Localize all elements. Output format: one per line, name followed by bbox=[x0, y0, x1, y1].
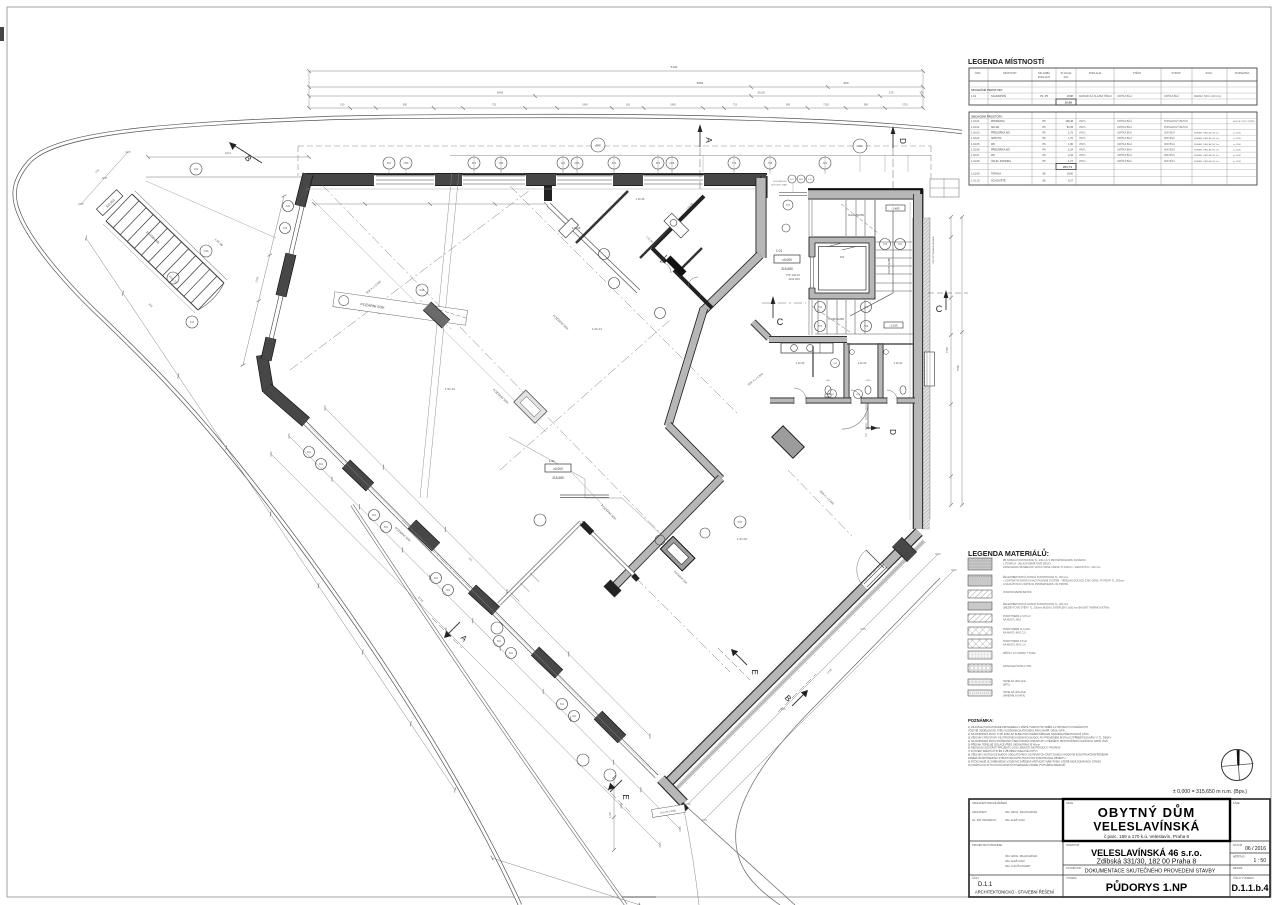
svg-text:900: 900 bbox=[843, 81, 848, 85]
svg-text:č.parc. 169 a 170 k.ú. Velesla: č.parc. 169 a 170 k.ú. Veleslavín, Praha… bbox=[1104, 834, 1189, 839]
svg-text:DOKUMENTACE SKUTEČNÉHO PROVEDE: DOKUMENTACE SKUTEČNÉHO PROVEDENÍ STAVBY bbox=[1085, 868, 1216, 875]
svg-text:A03: A03 bbox=[857, 144, 863, 148]
svg-text:7150: 7150 bbox=[945, 346, 949, 353]
svg-text:1.01: 1.01 bbox=[971, 94, 977, 98]
svg-text:1.01.04: 1.01.04 bbox=[894, 361, 903, 365]
svg-text:C: C bbox=[777, 317, 784, 327]
svg-text:WC: WC bbox=[991, 143, 995, 146]
svg-text:±0,000: ±0,000 bbox=[782, 258, 792, 262]
svg-text:OMÍTKA BÍLÁ: OMÍTKA BÍLÁ bbox=[1117, 126, 1132, 129]
svg-text:601: 601 bbox=[387, 161, 392, 165]
svg-text:601: 601 bbox=[560, 703, 565, 706]
svg-text:1,70: 1,70 bbox=[1068, 137, 1073, 140]
svg-text:1.01.07: 1.01.07 bbox=[971, 154, 980, 157]
svg-text:MÍSTNOST: MÍSTNOST bbox=[1003, 71, 1017, 75]
svg-text:2100 DP1: 2100 DP1 bbox=[788, 277, 800, 281]
svg-text:315,650: 315,650 bbox=[781, 267, 793, 271]
svg-text:A01: A01 bbox=[561, 161, 566, 165]
svg-text:7580: 7580 bbox=[956, 364, 960, 371]
svg-text:INVESTOR: INVESTOR bbox=[1066, 843, 1079, 847]
svg-text:KERAM. OBKLAD H2,1m: KERAM. OBKLAD H2,1m bbox=[1194, 160, 1219, 163]
svg-text:263,73: 263,73 bbox=[1063, 165, 1073, 169]
svg-text:601: 601 bbox=[307, 451, 312, 454]
svg-text:ARCHITEKTONICKO - STAVEBNÍ ŘEŠ: ARCHITEKTONICKO - STAVEBNÍ ŘEŠENÍ bbox=[975, 890, 1055, 895]
svg-text:1730: 1730 bbox=[608, 812, 612, 818]
svg-text:148,38: 148,38 bbox=[1065, 120, 1073, 123]
svg-text:797: 797 bbox=[786, 204, 791, 207]
svg-text:1.01.08: 1.01.08 bbox=[971, 160, 980, 163]
svg-text:590: 590 bbox=[786, 104, 791, 107]
svg-text:10) OMÍTKA NA STYKU DVOU RŮZNÝ: 10) OMÍTKA NA STYKU DVOU RŮZNÝCH MATERIÁ… bbox=[968, 764, 1065, 767]
svg-text:18,88: 18,88 bbox=[1067, 94, 1074, 98]
svg-text:Zdibská 331/30, 182 00 Praha 8: Zdibská 331/30, 182 00 Praha 8 bbox=[1097, 859, 1197, 866]
svg-text:3403: 3403 bbox=[497, 91, 504, 95]
svg-text:ZESÍLENÝ RÁM: ZESÍLENÝ RÁM bbox=[771, 184, 787, 187]
svg-text:SDK BÍLÁ: SDK BÍLÁ bbox=[1164, 154, 1175, 157]
svg-text:D: D bbox=[888, 429, 897, 435]
svg-text:7x168,5x250: 7x168,5x250 bbox=[828, 317, 844, 321]
svg-text:D06: D06 bbox=[404, 161, 409, 165]
svg-text:VINYL: VINYL bbox=[1079, 149, 1087, 152]
svg-text:29,30: 29,30 bbox=[758, 91, 765, 95]
svg-text:601: 601 bbox=[612, 161, 617, 165]
svg-text:1.01.04: 1.01.04 bbox=[971, 137, 980, 140]
svg-text:±0,000: ±0,000 bbox=[553, 467, 563, 471]
svg-text:18,60: 18,60 bbox=[1067, 173, 1074, 176]
svg-text:1.01.06: 1.01.06 bbox=[796, 361, 805, 365]
svg-text:VINYL: VINYL bbox=[1079, 160, 1087, 163]
svg-text:-2,483: -2,483 bbox=[892, 207, 900, 211]
svg-text:241: 241 bbox=[190, 320, 195, 324]
svg-text:C06: C06 bbox=[283, 227, 288, 230]
svg-text:1.01.09: 1.01.09 bbox=[971, 173, 980, 176]
svg-text:T0A: T0A bbox=[898, 243, 903, 246]
svg-text:POHLEDOVÝ BETON: POHLEDOVÝ BETON bbox=[1164, 120, 1188, 123]
svg-text:VÝKRES: VÝKRES bbox=[1066, 876, 1077, 880]
svg-text:KERAMICKÁ DLAŽBA TŘ9GO: KERAMICKÁ DLAŽBA TŘ9GO bbox=[1079, 95, 1112, 98]
svg-text:VINYL: VINYL bbox=[1079, 120, 1087, 123]
svg-text:OMÍTKA BÍLÁ: OMÍTKA BÍLÁ bbox=[1164, 95, 1179, 98]
svg-text:7x165 1x280: 7x165 1x280 bbox=[887, 258, 891, 274]
svg-text:1.01.08: 1.01.08 bbox=[572, 226, 581, 230]
svg-text:POZNÁMKA:: POZNÁMKA: bbox=[968, 718, 994, 723]
svg-text:2400: 2400 bbox=[582, 104, 588, 107]
svg-text:3x161,5x250: 3x161,5x250 bbox=[848, 213, 864, 217]
svg-text:v= 2200: v= 2200 bbox=[1233, 150, 1242, 152]
svg-text:± 0,000 = 315,650 m n.m. (Bpv.: ± 0,000 = 315,650 m n.m. (Bpv.) bbox=[1173, 789, 1247, 795]
svg-text:1 01 01: 1 01 01 bbox=[445, 387, 455, 391]
svg-text:D: D bbox=[898, 138, 907, 144]
svg-text:KERAM. OBKLAD H2,1m: KERAM. OBKLAD H2,1m bbox=[1194, 149, 1219, 152]
svg-text:REVIZE: REVIZE bbox=[1233, 866, 1243, 870]
svg-text:OBYTNÝ DŮM: OBYTNÝ DŮM bbox=[1098, 804, 1195, 820]
svg-text:83,05: 83,05 bbox=[1067, 126, 1074, 129]
svg-text:1.01.10: 1.01.10 bbox=[971, 180, 980, 183]
svg-text:OMÍTKA BÍLÁ: OMÍTKA BÍLÁ bbox=[1117, 132, 1132, 135]
svg-text:SKLAD: SKLAD bbox=[991, 126, 999, 129]
svg-text:LEGENDA MÍSTNOSTÍ: LEGENDA MÍSTNOSTÍ bbox=[968, 57, 1045, 66]
svg-text:601: 601 bbox=[319, 463, 324, 466]
svg-text:601: 601 bbox=[497, 640, 502, 643]
svg-text:T08: T08 bbox=[883, 243, 888, 246]
svg-text:ÚKLID. KOMORA: ÚKLID. KOMORA bbox=[991, 160, 1011, 163]
svg-text:D06: D06 bbox=[575, 161, 580, 165]
svg-text:PRODEJNA: PRODEJNA bbox=[991, 120, 1005, 123]
svg-text:SDK NLČSKÝ STĚRK: SDK NLČSKÝ STĚRK bbox=[1233, 120, 1255, 123]
svg-text:1011: 1011 bbox=[225, 151, 231, 155]
svg-text:1 01 01: 1 01 01 bbox=[592, 327, 602, 331]
svg-text:715: 715 bbox=[733, 104, 738, 107]
svg-text:P4, P5: P4, P5 bbox=[1040, 94, 1048, 98]
svg-text:SCHODIŠTĚ: SCHODIŠTĚ bbox=[991, 180, 1006, 183]
svg-text:601: 601 bbox=[656, 161, 661, 165]
svg-text:601: 601 bbox=[509, 652, 514, 655]
svg-text:PODLAHA: PODLAHA bbox=[1089, 71, 1102, 75]
svg-text:1 : 50: 1 : 50 bbox=[1253, 858, 1266, 864]
svg-text:E: E bbox=[750, 669, 759, 674]
svg-text:T05: T05 bbox=[818, 325, 823, 328]
svg-text:ARCHITEKT:: ARCHITEKT: bbox=[972, 810, 987, 814]
svg-text:D37: D37 bbox=[738, 520, 743, 524]
svg-text:A02: A02 bbox=[595, 143, 601, 147]
svg-text:KERAM. OBKLAD H2,1m: KERAM. OBKLAD H2,1m bbox=[1194, 137, 1219, 140]
svg-text:1.01.03: 1.01.03 bbox=[971, 132, 980, 135]
svg-text:STROP: STROP bbox=[1172, 71, 1181, 75]
svg-text:SPOLEČNÉ PROSTORY: SPOLEČNÉ PROSTORY bbox=[971, 87, 1003, 92]
svg-text:601: 601 bbox=[572, 715, 577, 718]
svg-text:TYP: EW 10: TYP: EW 10 bbox=[786, 273, 801, 277]
svg-text:06 / 2016: 06 / 2016 bbox=[1245, 846, 1266, 852]
svg-text:PŘEDSÍŇKA WC: PŘEDSÍŇKA WC bbox=[991, 149, 1010, 152]
svg-text:POHLEDOVÝ BETON: POHLEDOVÝ BETON bbox=[1164, 126, 1188, 129]
svg-text:SDK BÍLÁ: SDK BÍLÁ bbox=[1164, 149, 1175, 152]
svg-text:900: 900 bbox=[840, 255, 845, 259]
svg-text:1.01.03: 1.01.03 bbox=[858, 361, 867, 365]
svg-text:E: E bbox=[621, 794, 630, 799]
svg-text:T06: T06 bbox=[864, 325, 869, 328]
svg-text:PODLAHY: PODLAHY bbox=[1038, 75, 1051, 79]
svg-text:v= 2200: v= 2200 bbox=[1233, 144, 1242, 146]
svg-text:601: 601 bbox=[446, 589, 451, 592]
svg-text:170: 170 bbox=[889, 91, 894, 95]
svg-text:715: 715 bbox=[492, 104, 497, 107]
svg-text:601: 601 bbox=[434, 577, 439, 580]
svg-text:SDK BÍLÁ: SDK BÍLÁ bbox=[1164, 132, 1175, 135]
svg-text:1.01.05: 1.01.05 bbox=[971, 143, 980, 146]
svg-text:A02: A02 bbox=[823, 161, 828, 165]
svg-text:v= 2200: v= 2200 bbox=[1233, 155, 1242, 157]
svg-text:T04: T04 bbox=[864, 306, 869, 309]
svg-text:KERAM. OBKLAD H2,1m: KERAM. OBKLAD H2,1m bbox=[1194, 143, 1219, 146]
svg-text:SDK BÍLÁ: SDK BÍLÁ bbox=[1164, 137, 1175, 140]
svg-text:SESTAVA S04: SESTAVA S04 bbox=[773, 180, 788, 183]
svg-text:T03: T03 bbox=[732, 161, 737, 165]
svg-text:2715: 2715 bbox=[902, 104, 908, 107]
svg-text:2450: 2450 bbox=[670, 104, 676, 107]
svg-text:A40: A40 bbox=[286, 205, 291, 208]
svg-text:ZATEPLENÍ SOKLU XPS: ZATEPLENÍ SOKLU XPS bbox=[1003, 665, 1032, 668]
svg-text:v= 2200: v= 2200 bbox=[1233, 138, 1242, 140]
svg-text:D38: D38 bbox=[420, 288, 425, 292]
svg-text:NA MALTU MVC 2,5: NA MALTU MVC 2,5 bbox=[1003, 632, 1026, 635]
svg-text:LEGENDA MATERIÁLŮ:: LEGENDA MATERIÁLŮ: bbox=[968, 548, 1049, 558]
svg-text:1.01.06: 1.01.06 bbox=[971, 149, 980, 152]
svg-text:6,27: 6,27 bbox=[1068, 180, 1073, 183]
svg-text:VELESLAVÍNSKÁ 46 s.r.o.: VELESLAVÍNSKÁ 46 s.r.o. bbox=[1091, 848, 1202, 858]
svg-text:39: 39 bbox=[919, 91, 923, 95]
svg-text:KERAM. OBKLAD H2,1m: KERAM. OBKLAD H2,1m bbox=[1194, 132, 1219, 135]
svg-text:OMÍTKA BÍLÁ: OMÍTKA BÍLÁ bbox=[1117, 120, 1132, 123]
svg-text:(MEZIBYTOVÉ STĚNY TL. 200mm BU: (MEZIBYTOVÉ STĚNY TL. 200mm BUDOU ZATEPL… bbox=[1003, 607, 1110, 610]
svg-text:1,27: 1,27 bbox=[1068, 160, 1073, 163]
svg-text:WC: WC bbox=[991, 154, 995, 157]
svg-text:601: 601 bbox=[372, 514, 377, 517]
svg-text:601: 601 bbox=[472, 161, 477, 165]
svg-text:18,88: 18,88 bbox=[1064, 101, 1072, 105]
svg-text:(MINERÁLNÍ VATA): (MINERÁLNÍ VATA) bbox=[1003, 695, 1025, 698]
svg-text:A SILIKÁTOVOU OMÍTKOU PROBARVE: A SILIKÁTOVOU OMÍTKOU PROBARVENOU VE HMO… bbox=[1003, 583, 1068, 586]
svg-text:1,75: 1,75 bbox=[1068, 132, 1073, 135]
svg-text:-1,013: -1,013 bbox=[890, 324, 898, 328]
svg-text:NA MALTU M10: NA MALTU M10 bbox=[1003, 619, 1021, 622]
svg-text:100: 100 bbox=[626, 104, 631, 107]
svg-text:D06: D06 bbox=[670, 161, 675, 165]
svg-text:5130: 5130 bbox=[671, 65, 678, 69]
svg-text:KERAM. OBKLAD H2,1m: KERAM. OBKLAD H2,1m bbox=[1194, 154, 1219, 157]
svg-text:590: 590 bbox=[403, 104, 408, 107]
svg-text:PŘÍČKY Z TVÁRNIC YTONG: PŘÍČKY Z TVÁRNIC YTONG bbox=[1003, 652, 1036, 655]
svg-text:PROJEKTANT PROFESE: PROJEKTANT PROFESE bbox=[972, 843, 1002, 847]
svg-text:D40: D40 bbox=[204, 249, 209, 253]
svg-text:VINYL: VINYL bbox=[1079, 126, 1087, 129]
svg-text:OMÍTKA BÍLÁ: OMÍTKA BÍLÁ bbox=[1117, 137, 1132, 140]
svg-text:1.01.06: 1.01.06 bbox=[636, 197, 645, 201]
svg-text:OZN.: OZN. bbox=[975, 71, 981, 75]
svg-text:2,34: 2,34 bbox=[1068, 154, 1073, 157]
svg-text:(EPS): (EPS) bbox=[1003, 684, 1010, 687]
svg-text:D.1.1.b.4: D.1.1.b.4 bbox=[1231, 883, 1268, 893]
svg-text:D.1.1: D.1.1 bbox=[978, 882, 993, 888]
svg-text:PŮDORYS 1.NP: PŮDORYS 1.NP bbox=[1106, 880, 1188, 894]
svg-text:1,80: 1,80 bbox=[1068, 143, 1073, 146]
svg-text:1 01: 1 01 bbox=[776, 249, 782, 253]
svg-text:D06: D06 bbox=[499, 161, 504, 165]
svg-text:VELESLAVÍNSKÁ: VELESLAVÍNSKÁ bbox=[1093, 819, 1199, 834]
svg-text:VINYL: VINYL bbox=[1079, 137, 1087, 140]
svg-text:1 01 02: 1 01 02 bbox=[737, 537, 747, 541]
svg-text:AKCE: AKCE bbox=[1066, 801, 1073, 805]
svg-text:NA MALTU MVC 2,5: NA MALTU MVC 2,5 bbox=[1003, 644, 1026, 647]
svg-text:1,90: 1,90 bbox=[340, 104, 345, 107]
svg-text:SDK BÍLÁ: SDK BÍLÁ bbox=[1164, 143, 1175, 146]
svg-text:2100: 2100 bbox=[866, 380, 872, 382]
svg-text:A: A bbox=[704, 137, 713, 143]
svg-text:SOKL: SOKL bbox=[1206, 71, 1213, 75]
svg-text:(M²): (M²) bbox=[1064, 75, 1069, 79]
svg-text:OMÍTKA BÍLÁ: OMÍTKA BÍLÁ bbox=[1117, 149, 1132, 152]
svg-text:OMÍTKA BÍLÁ: OMÍTKA BÍLÁ bbox=[1117, 143, 1132, 146]
svg-text:315,650: 315,650 bbox=[552, 476, 564, 480]
svg-text:7150: 7150 bbox=[823, 104, 829, 107]
svg-text:SKLADBA: SKLADBA bbox=[1038, 71, 1050, 75]
svg-text:PLOCHA: PLOCHA bbox=[1061, 71, 1072, 75]
svg-text:VINYL: VINYL bbox=[1079, 154, 1087, 157]
svg-text:1.01.01: 1.01.01 bbox=[971, 120, 980, 123]
svg-text:PŘEDSÍŇKA WC: PŘEDSÍŇKA WC bbox=[991, 132, 1010, 135]
svg-text:VINYL: VINYL bbox=[1079, 132, 1087, 135]
svg-text:T05: T05 bbox=[768, 161, 773, 165]
svg-text:ZATEPLENOU MINERÁLNÍ VATOU ORS: ZATEPLENOU MINERÁLNÍ VATOU ORSIL FASSIL … bbox=[1003, 566, 1100, 569]
svg-text:OMÍTKA BÍLÁ: OMÍTKA BÍLÁ bbox=[1117, 160, 1132, 163]
svg-text:242: 242 bbox=[194, 167, 199, 171]
svg-text:TERASA: TERASA bbox=[991, 173, 1001, 176]
svg-text:C: C bbox=[936, 304, 943, 314]
svg-text:601: 601 bbox=[384, 526, 389, 529]
svg-text:DATUM: DATUM bbox=[1233, 843, 1242, 847]
svg-text:T03: T03 bbox=[818, 306, 823, 309]
svg-text:v= 2200: v= 2200 bbox=[1233, 161, 1242, 163]
svg-text:1.01.02: 1.01.02 bbox=[971, 126, 980, 129]
svg-text:5054: 5054 bbox=[697, 81, 704, 85]
svg-text:1 01: 1 01 bbox=[549, 459, 555, 463]
svg-text:2,24: 2,24 bbox=[1068, 149, 1073, 152]
svg-text:OMÍTKA BÍLÁ: OMÍTKA BÍLÁ bbox=[1117, 95, 1132, 98]
svg-text:KERAM. SOKL (140 mm): KERAM. SOKL (140 mm) bbox=[1194, 95, 1221, 98]
svg-text:SPRCHA: SPRCHA bbox=[991, 137, 1002, 140]
svg-text:OBCHODNÍ PROSTORY: OBCHODNÍ PROSTORY bbox=[971, 115, 1003, 119]
svg-text:SDK BÍLÁ: SDK BÍLÁ bbox=[1164, 160, 1175, 163]
svg-text:FÁZE: FÁZE bbox=[1233, 801, 1240, 805]
svg-text:VODOSTAVEBNÍ BETON: VODOSTAVEBNÍ BETON bbox=[1003, 591, 1032, 594]
svg-text:990: 990 bbox=[864, 104, 869, 107]
svg-text:v= 2200: v= 2200 bbox=[1233, 133, 1242, 135]
svg-text:OMÍTKA BÍLÁ: OMÍTKA BÍLÁ bbox=[1117, 154, 1132, 157]
svg-text:VINYL: VINYL bbox=[1079, 143, 1087, 146]
svg-text:POZNÁMKA: POZNÁMKA bbox=[1235, 71, 1250, 75]
svg-text:PROVĚTRÁVANÁ FASÁDA: PROVĚTRÁVANÁ FASÁDA bbox=[932, 236, 935, 264]
